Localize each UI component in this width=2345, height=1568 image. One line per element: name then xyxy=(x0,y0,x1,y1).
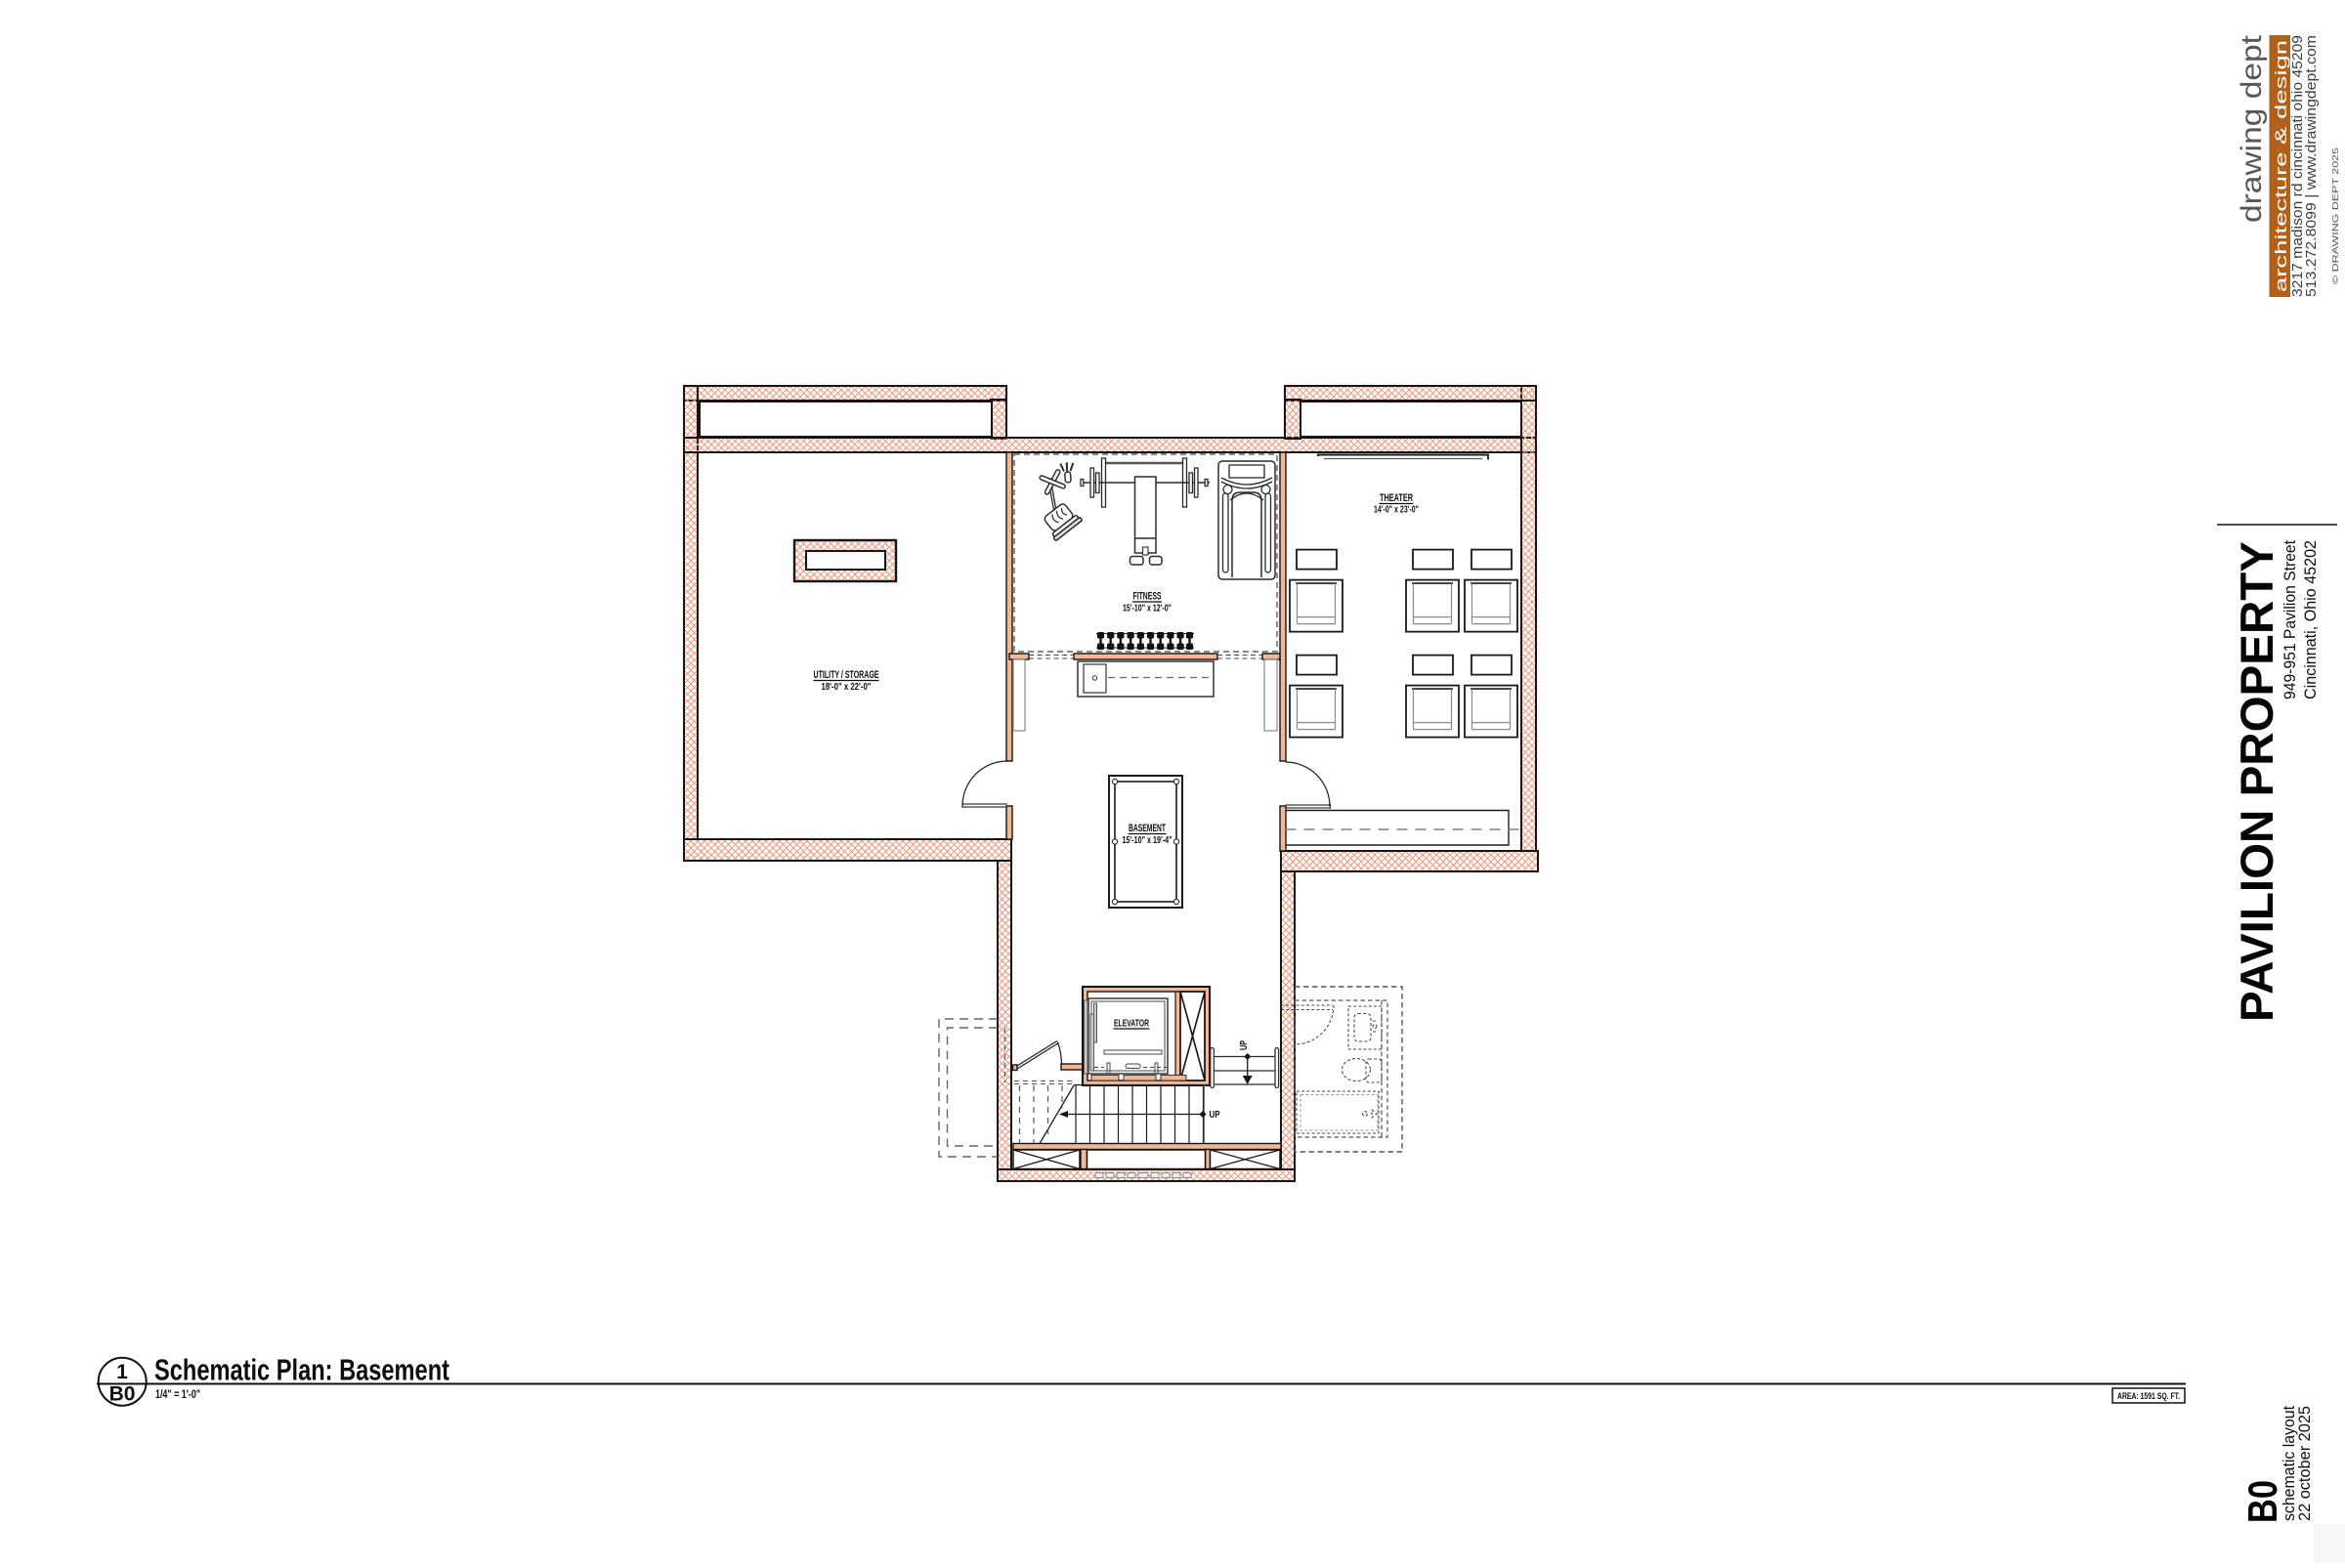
svg-text:1: 1 xyxy=(116,1361,128,1383)
svg-text:1/4" = 1'-0": 1/4" = 1'-0" xyxy=(155,1387,200,1401)
svg-text:18'-0" x 22'-0": 18'-0" x 22'-0" xyxy=(822,681,872,693)
svg-text:THEATER: THEATER xyxy=(1380,492,1413,504)
svg-text:UTILITY / STORAGE: UTILITY / STORAGE xyxy=(814,669,879,681)
svg-text:architecture & design: architecture & design xyxy=(2272,40,2290,292)
svg-text:UP: UP xyxy=(1239,1040,1250,1050)
svg-text:B0: B0 xyxy=(2239,1480,2285,1523)
svg-text:15'-10" x 12'-0": 15'-10" x 12'-0" xyxy=(1123,603,1172,614)
svg-text:FITNESS: FITNESS xyxy=(1133,591,1162,603)
svg-text:drawing dept: drawing dept xyxy=(2236,34,2268,223)
svg-text:PAVILION PROPERTY: PAVILION PROPERTY xyxy=(2231,541,2282,1022)
svg-text:15'-10" x 19'-4": 15'-10" x 19'-4" xyxy=(1123,834,1172,846)
svg-text:Schematic Plan: Basement: Schematic Plan: Basement xyxy=(154,1353,449,1387)
svg-text:AREA: 1591 SQ. FT.: AREA: 1591 SQ. FT. xyxy=(2117,1391,2180,1402)
svg-text:949-951 Pavilion Street: 949-951 Pavilion Street xyxy=(2281,540,2299,699)
svg-text:B0: B0 xyxy=(109,1383,136,1406)
svg-text:ELEVATOR: ELEVATOR xyxy=(1114,1018,1149,1030)
svg-text:22 october 2025: 22 october 2025 xyxy=(2295,1406,2314,1521)
svg-text:Cincinnati, Ohio 45202: Cincinnati, Ohio 45202 xyxy=(2301,540,2320,699)
svg-text:14'-0" x 23'-0": 14'-0" x 23'-0" xyxy=(1374,504,1419,516)
svg-text:BASEMENT: BASEMENT xyxy=(1129,823,1166,834)
svg-text:© DRAWING DEPT 2025: © DRAWING DEPT 2025 xyxy=(2331,147,2340,284)
svg-text:UP: UP xyxy=(1210,1109,1220,1121)
svg-text:513.272.8099 | www.drawingdept: 513.272.8099 | www.drawingdept.com xyxy=(2304,35,2320,297)
